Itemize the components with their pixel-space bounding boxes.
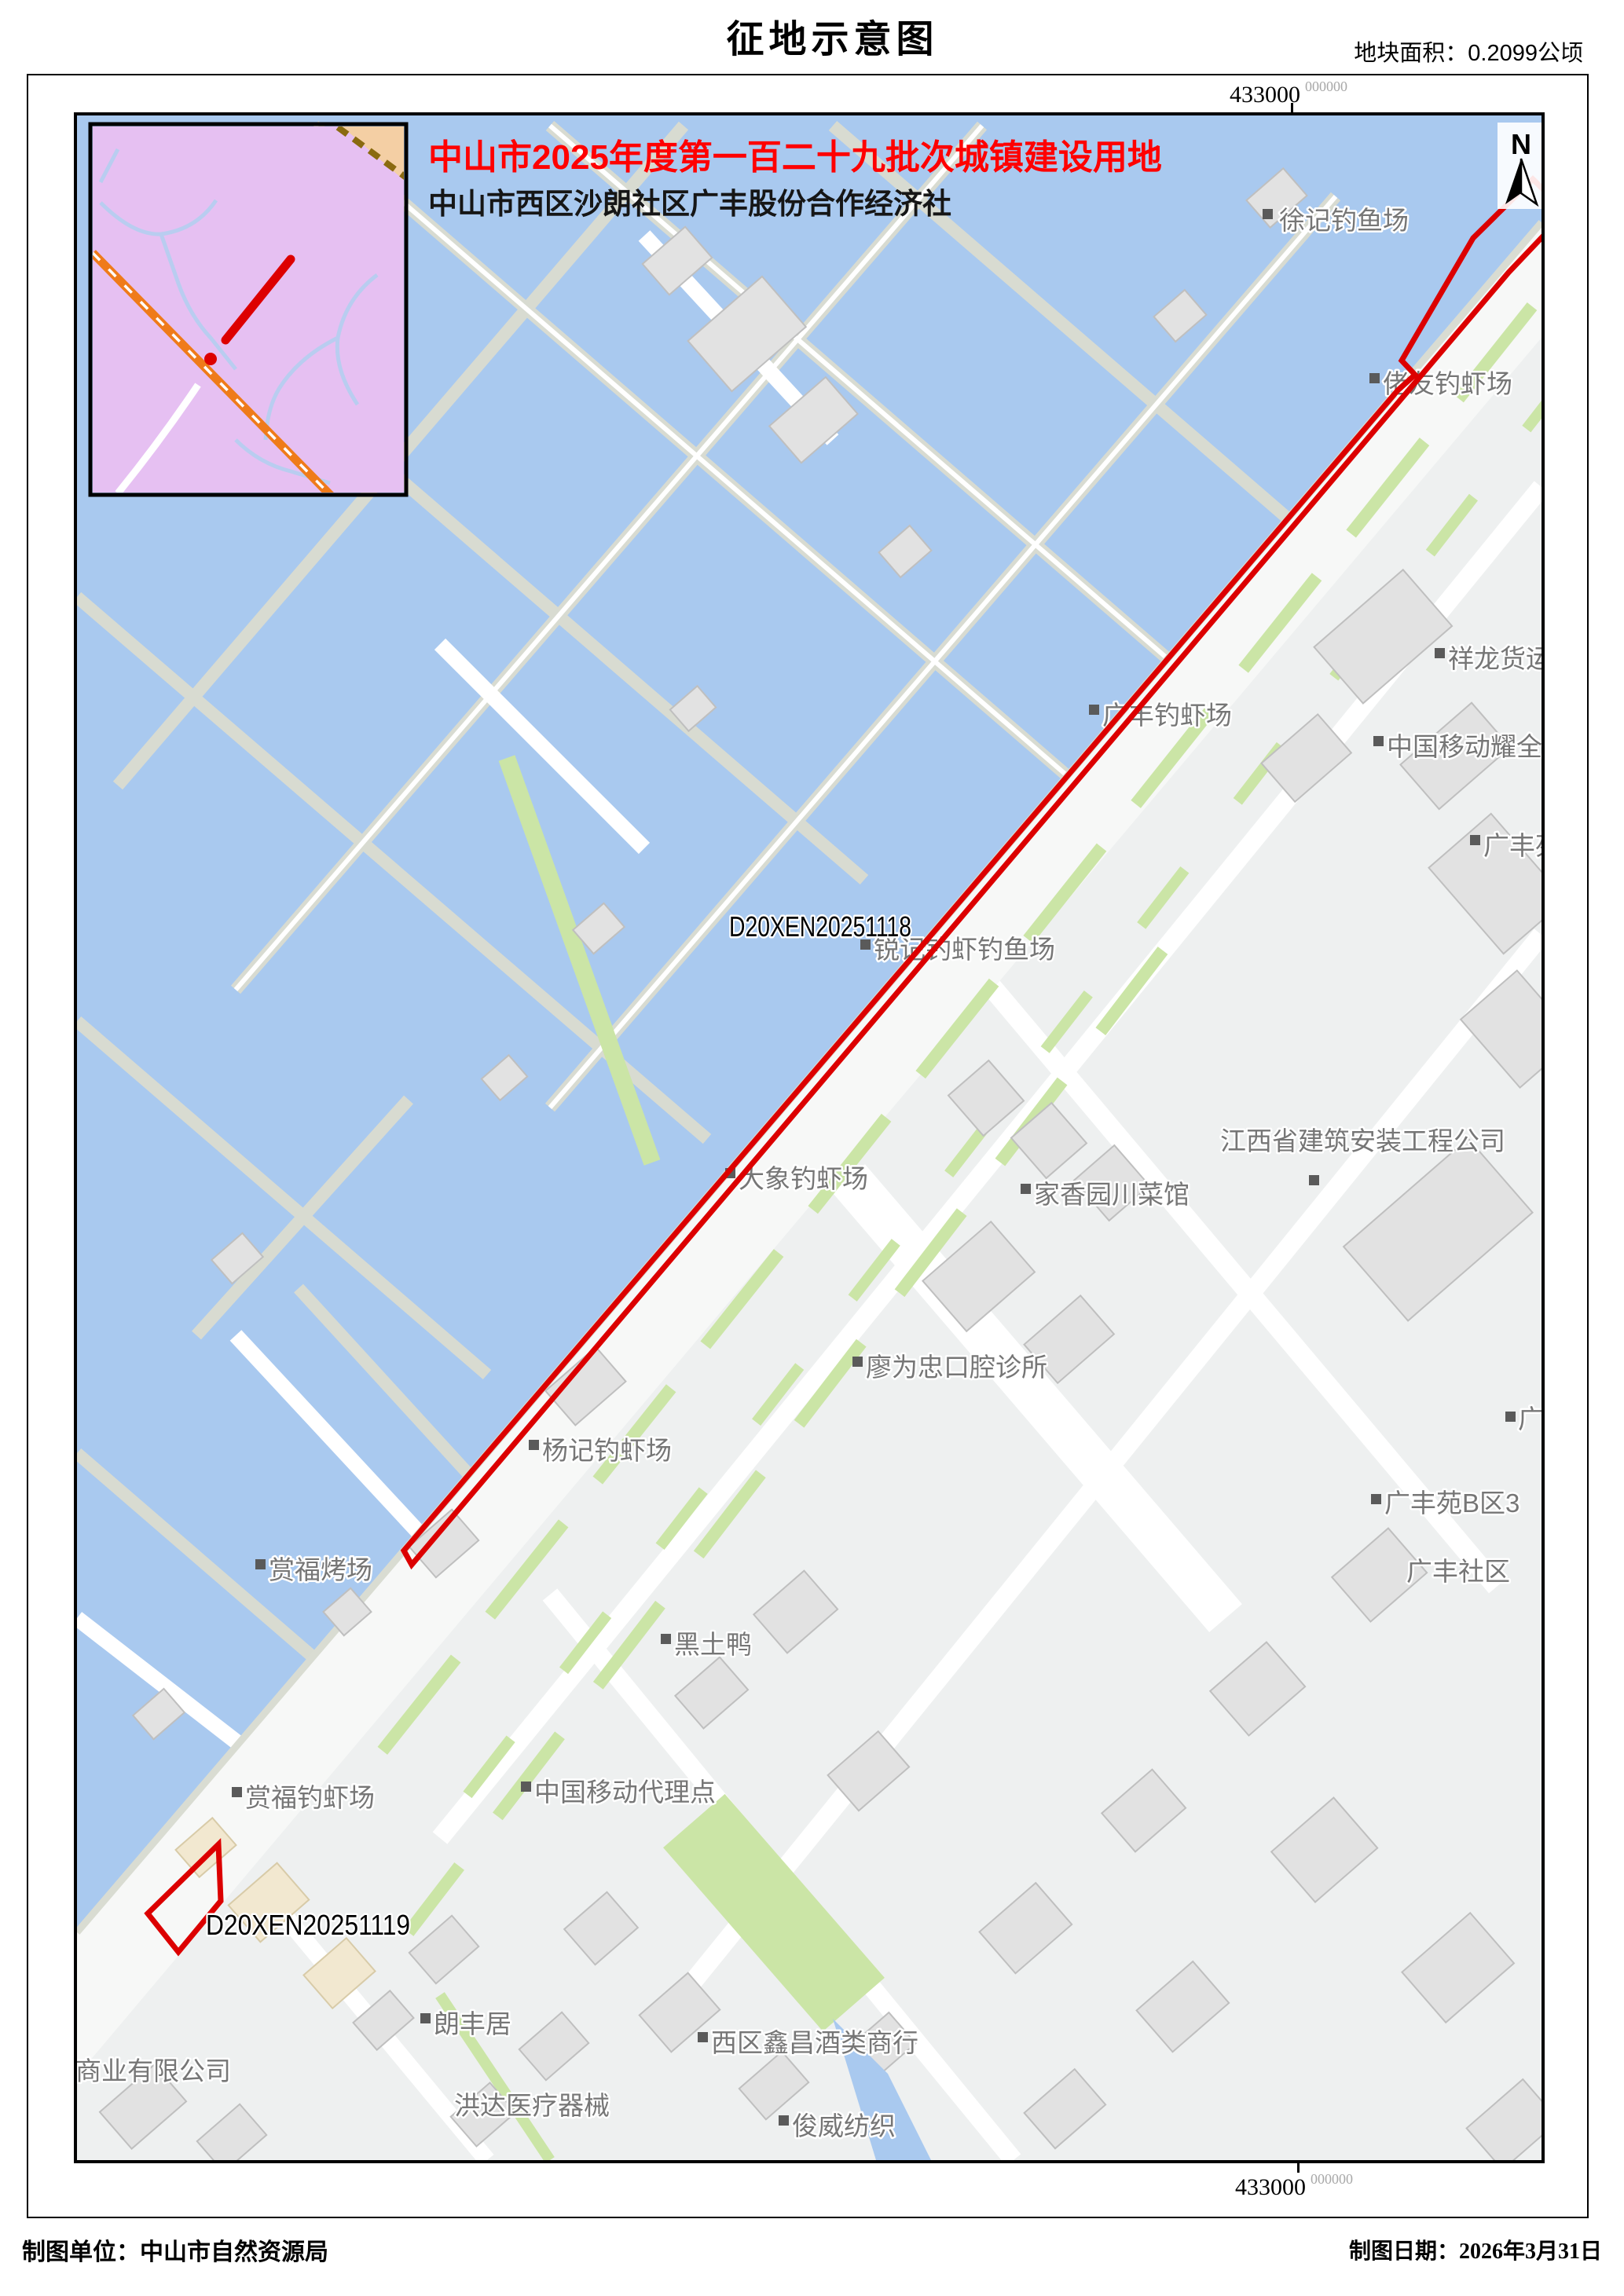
map-label: 洪达医疗器械 [454, 2091, 610, 2120]
map-label: 广丰 [1518, 1404, 1542, 1434]
map-label: 杨记钓虾场 [542, 1436, 672, 1465]
area-note: 地块面积：0.2099公顷 [1354, 35, 1583, 68]
map-label: 俊威纺织 [792, 2111, 896, 2140]
map-label: 赏福烤场 [269, 1555, 372, 1584]
map-label: 廖为忠口腔诊所 [866, 1353, 1047, 1382]
map-canvas: 徐记钓鱼场 佬友钓虾场 广丰钓虾场 祥龙货运 中国移动耀全 广丰苑 锐记钓虾钓鱼… [77, 115, 1542, 2160]
map-label: 中国移动耀全 [1387, 732, 1542, 761]
map-label: 中国移动代理点 [534, 1778, 716, 1807]
footer-mapping-unit: 制图单位：中山市自然资源局 [22, 2232, 328, 2267]
coordinate-bottom-main: 433000 [1235, 2174, 1306, 2200]
page-title: 征地示意图 [726, 8, 938, 63]
map-frame: 徐记钓鱼场 佬友钓虾场 广丰钓虾场 祥龙货运 中国移动耀全 广丰苑 锐记钓虾钓鱼… [74, 112, 1545, 2163]
map-label: 江西省建筑安装工程公司 [1220, 1126, 1505, 1155]
map-label: 家香园川菜馆 [1034, 1180, 1190, 1209]
footer-mapping-date: 制图日期：2026年3月31日 [1349, 2234, 1602, 2265]
map-label: 徐记钓鱼场 [1279, 206, 1409, 235]
inset-map [90, 124, 412, 503]
coordinate-top: 433000000000 [1230, 79, 1347, 108]
coordinate-top-sup: 000000 [1305, 79, 1347, 94]
coordinate-top-main: 433000 [1230, 82, 1300, 108]
map-label: 黑土鸭 [674, 1630, 752, 1659]
parcel-id-label: D20XEN20251119 [206, 1909, 410, 1941]
map-label: 祥龙货运 [1448, 644, 1542, 673]
batch-subtitle: 中山市西区沙朗社区广丰股份合作经济社 [428, 187, 951, 220]
parcel-id-label: D20XEN20251118 [729, 910, 911, 943]
map-label: 商业有限公司 [77, 2056, 231, 2085]
north-arrow: N [1498, 123, 1542, 209]
map-label: 朗丰居 [434, 2009, 511, 2038]
inset-parcel-dot [204, 353, 217, 365]
map-label: 西区鑫昌酒类商行 [711, 2028, 918, 2057]
map-label: 广丰社区 [1406, 1557, 1510, 1586]
coordinate-bottom-sup: 000000 [1311, 2171, 1353, 2187]
map-label: 广丰苑B区3 [1384, 1489, 1520, 1518]
coordinate-bottom: 433000000000 [1235, 2171, 1353, 2201]
map-label: 广丰苑 [1483, 831, 1542, 860]
map-label: 大象钓虾场 [739, 1164, 868, 1193]
map-label: 赏福钓虾场 [245, 1783, 375, 1812]
north-arrow-label: N [1511, 128, 1531, 160]
batch-title: 中山市2025年度第一百二十九批次城镇建设用地 [428, 138, 1162, 177]
